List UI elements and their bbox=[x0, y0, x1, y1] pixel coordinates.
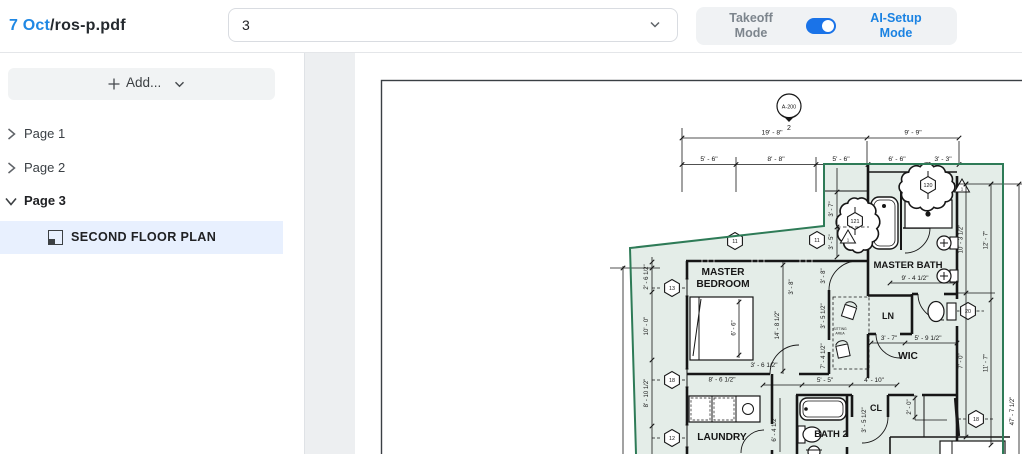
svg-text:6' - 6": 6' - 6" bbox=[888, 156, 906, 163]
svg-text:3' - 8": 3' - 8" bbox=[821, 268, 827, 283]
svg-text:4' - 10": 4' - 10" bbox=[864, 377, 884, 384]
svg-text:13: 13 bbox=[669, 286, 675, 292]
svg-text:8' - 8": 8' - 8" bbox=[767, 156, 785, 163]
svg-text:MASTER BATH: MASTER BATH bbox=[873, 260, 942, 271]
svg-text:14' - 8 1/2": 14' - 8 1/2" bbox=[775, 311, 781, 340]
svg-text:SITTING: SITTING bbox=[833, 327, 847, 331]
svg-text:BEDROOM: BEDROOM bbox=[696, 279, 749, 290]
svg-text:19' - 8": 19' - 8" bbox=[761, 130, 783, 137]
svg-text:MASTER: MASTER bbox=[701, 267, 745, 278]
svg-text:2: 2 bbox=[787, 125, 791, 132]
svg-text:5' - 5": 5' - 5" bbox=[817, 377, 833, 384]
svg-text:3' - 3": 3' - 3" bbox=[934, 156, 952, 163]
svg-text:47' - 7 1/2": 47' - 7 1/2" bbox=[1010, 397, 1016, 426]
svg-text:3' - 7": 3' - 7" bbox=[829, 201, 835, 216]
svg-text:3' - 5 1/2": 3' - 5 1/2" bbox=[862, 407, 868, 432]
svg-text:12: 12 bbox=[669, 436, 675, 442]
svg-text:8' - 10 1/2": 8' - 10 1/2" bbox=[644, 379, 650, 408]
svg-text:AREA: AREA bbox=[835, 332, 845, 336]
svg-text:12' - 7": 12' - 7" bbox=[984, 231, 990, 250]
svg-text:10' - 0": 10' - 0" bbox=[644, 317, 650, 336]
svg-text:3' - 7": 3' - 7" bbox=[881, 335, 897, 342]
svg-text:3' - 5": 3' - 5" bbox=[829, 234, 835, 249]
svg-text:7' - 4 1/2": 7' - 4 1/2" bbox=[821, 343, 827, 368]
svg-text:9' - 9": 9' - 9" bbox=[904, 130, 922, 137]
svg-text:A-200: A-200 bbox=[782, 104, 796, 110]
svg-text:CL: CL bbox=[870, 403, 882, 413]
svg-text:3' - 5 1/2": 3' - 5 1/2" bbox=[821, 303, 827, 328]
svg-text:LAUNDRY: LAUNDRY bbox=[697, 432, 747, 443]
svg-text:WIC: WIC bbox=[898, 351, 918, 362]
svg-text:7' - 0": 7' - 0" bbox=[959, 353, 965, 368]
svg-text:6' - 4 1/2": 6' - 4 1/2" bbox=[772, 416, 778, 441]
svg-text:18: 18 bbox=[973, 417, 979, 423]
svg-text:11: 11 bbox=[732, 239, 738, 245]
svg-text:BATH 2: BATH 2 bbox=[814, 429, 848, 440]
svg-text:LN: LN bbox=[882, 311, 894, 321]
svg-text:5' - 6": 5' - 6" bbox=[700, 156, 718, 163]
svg-text:2' - 0": 2' - 0" bbox=[907, 399, 913, 414]
svg-text:11: 11 bbox=[814, 238, 820, 244]
svg-text:6' - 6": 6' - 6" bbox=[732, 320, 738, 335]
svg-text:18: 18 bbox=[669, 378, 675, 384]
svg-text:10' - 3 1/2": 10' - 3 1/2" bbox=[959, 225, 965, 254]
svg-text:120: 120 bbox=[924, 183, 933, 189]
svg-text:121: 121 bbox=[851, 219, 860, 225]
svg-text:3' - 6 1/2": 3' - 6 1/2" bbox=[751, 362, 778, 369]
svg-text:9' - 4 1/2": 9' - 4 1/2" bbox=[902, 275, 929, 282]
svg-text:3' - 8": 3' - 8" bbox=[789, 279, 795, 294]
svg-text:11' - 7": 11' - 7" bbox=[984, 354, 990, 372]
svg-text:5' - 9 1/2": 5' - 9 1/2" bbox=[915, 335, 942, 342]
svg-text:8' - 6 1/2": 8' - 6 1/2" bbox=[709, 377, 736, 384]
svg-text:5' - 6": 5' - 6" bbox=[832, 156, 850, 163]
